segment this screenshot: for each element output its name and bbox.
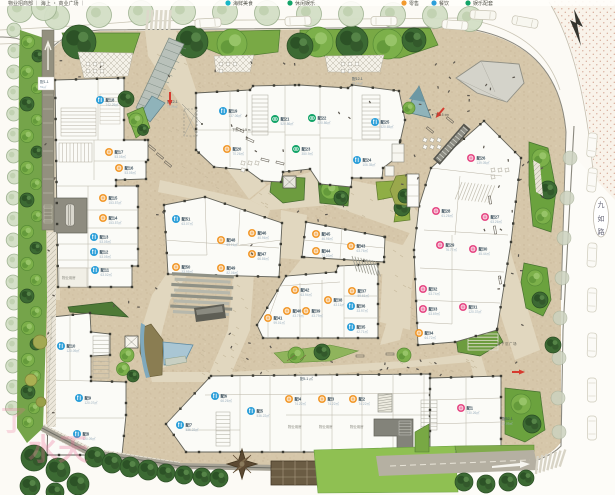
svg-text:76.77㎡: 76.77㎡ [446,247,458,252]
svg-text:74.22㎡: 74.22㎡ [295,401,307,406]
svg-text:53.05㎡: 53.05㎡ [100,239,112,244]
svg-text:42.71㎡: 42.71㎡ [357,329,369,334]
svg-text:61.26㎡: 61.26㎡ [442,213,454,218]
svg-text:43.11㎡: 43.11㎡ [334,302,346,307]
svg-text:海鲜美食: 海鲜美食 [233,0,253,7]
svg-text:66.26㎡: 66.26㎡ [221,398,233,403]
svg-text:63.02㎡: 63.02㎡ [101,272,113,277]
svg-text:106.35㎡: 106.35㎡ [363,162,377,167]
svg-text:餐饮: 餐饮 [439,0,449,7]
svg-text:物业用房: 物业用房 [350,424,364,429]
svg-text:53.05㎡: 53.05㎡ [100,254,112,259]
svg-text:70.26㎡: 70.26㎡ [233,151,245,156]
svg-text:742.29㎡: 742.29㎡ [106,102,120,107]
svg-text:63.26㎡: 63.26㎡ [491,219,503,224]
svg-text:74.22㎡: 74.22㎡ [359,401,371,406]
svg-text:536.22㎡: 536.22㎡ [186,427,200,432]
svg-text:63.11㎡: 63.11㎡ [227,242,239,247]
svg-text:520.65㎡: 520.65㎡ [381,124,395,129]
svg-text:153.57㎡: 153.57㎡ [109,220,123,225]
svg-text:63.76㎡: 63.76㎡ [357,248,369,253]
svg-text:120.09㎡: 120.09㎡ [67,348,81,353]
svg-text:153.57㎡: 153.57㎡ [109,200,123,205]
svg-text:配52-1: 配52-1 [502,416,513,421]
svg-text:物业用房: 物业用房 [62,275,76,280]
svg-text:沿 下 沉 广 场: 沿 下 沉 广 场 [497,341,516,346]
svg-text:45.44㎡: 45.44㎡ [479,251,491,256]
svg-text:53.05㎡: 53.05㎡ [115,154,127,159]
svg-text:59.61㎡: 59.61㎡ [358,293,370,298]
svg-text:350.9㎡: 350.9㎡ [302,151,314,156]
svg-text:43.75㎡: 43.75㎡ [293,313,305,318]
svg-text:74.22㎡: 74.22㎡ [328,401,340,406]
svg-text:路: 路 [598,227,605,236]
svg-text:730.26㎡: 730.26㎡ [467,410,481,415]
svg-text:73.56㎡: 73.56㎡ [167,104,178,109]
svg-text:64.72㎡: 64.72㎡ [425,335,437,340]
svg-text:▼ 下 1.5 ±m: ▼ 下 1.5 ±m [431,113,449,117]
svg-text:63.94㎡: 63.94㎡ [301,292,313,297]
svg-text:137.06㎡: 137.06㎡ [229,113,243,118]
svg-text:娱乐配套: 娱乐配套 [473,0,493,7]
svg-text:配5-1 ㎡: 配5-1 ㎡ [300,376,313,381]
svg-text:520.86㎡: 520.86㎡ [281,121,295,126]
svg-text:物业用房: 物业用房 [288,424,302,429]
svg-text:了: 了 [0,405,28,436]
svg-text:99.01㎡: 99.01㎡ [274,320,286,325]
svg-text:53.05㎡: 53.05㎡ [125,170,137,175]
svg-text:33.95㎡: 33.95㎡ [182,269,194,274]
svg-text:63.69㎡: 63.69㎡ [429,311,441,316]
svg-text:63.74㎡: 63.74㎡ [429,291,441,296]
svg-text:43.79㎡: 43.79㎡ [312,313,324,318]
svg-text:九: 九 [598,200,605,209]
svg-text:物业招商部 ｜ 海上 ・ 商业广场 ｜: 物业招商部 ｜ 海上 ・ 商业广场 ｜ [8,0,85,7]
svg-text:74.03㎡: 74.03㎡ [322,253,334,258]
svg-text:66.86㎡: 66.86㎡ [258,256,270,261]
svg-text:如: 如 [598,214,605,223]
svg-text:139.05㎡: 139.05㎡ [477,160,491,165]
svg-text:536.22㎡: 536.22㎡ [257,413,271,418]
svg-text:水天: 水天 [28,434,88,467]
svg-text:63.07㎡: 63.07㎡ [182,221,194,226]
svg-text:配1-1: 配1-1 [40,79,49,84]
svg-text:配12-1: 配12-1 [352,76,363,81]
svg-text:40.96㎡: 40.96㎡ [258,235,270,240]
svg-text:零售: 零售 [409,0,419,7]
svg-text:82.06㎡: 82.06㎡ [227,270,239,275]
svg-text:物业用房: 物业用房 [319,424,333,429]
svg-text:120.37㎡: 120.37㎡ [469,309,483,314]
svg-text:120.07㎡: 120.07㎡ [85,400,99,405]
svg-text:520.86㎡: 520.86㎡ [318,120,332,125]
svg-text:46.96㎡: 46.96㎡ [322,236,334,241]
svg-text:27.05㎡: 27.05㎡ [502,421,513,426]
svg-text:休闲娱乐: 休闲娱乐 [295,0,315,7]
svg-text:59㎡: 59㎡ [40,84,46,89]
svg-text:33.97㎡: 33.97㎡ [357,308,369,313]
svg-text:73.56㎡: 73.56㎡ [352,81,363,86]
